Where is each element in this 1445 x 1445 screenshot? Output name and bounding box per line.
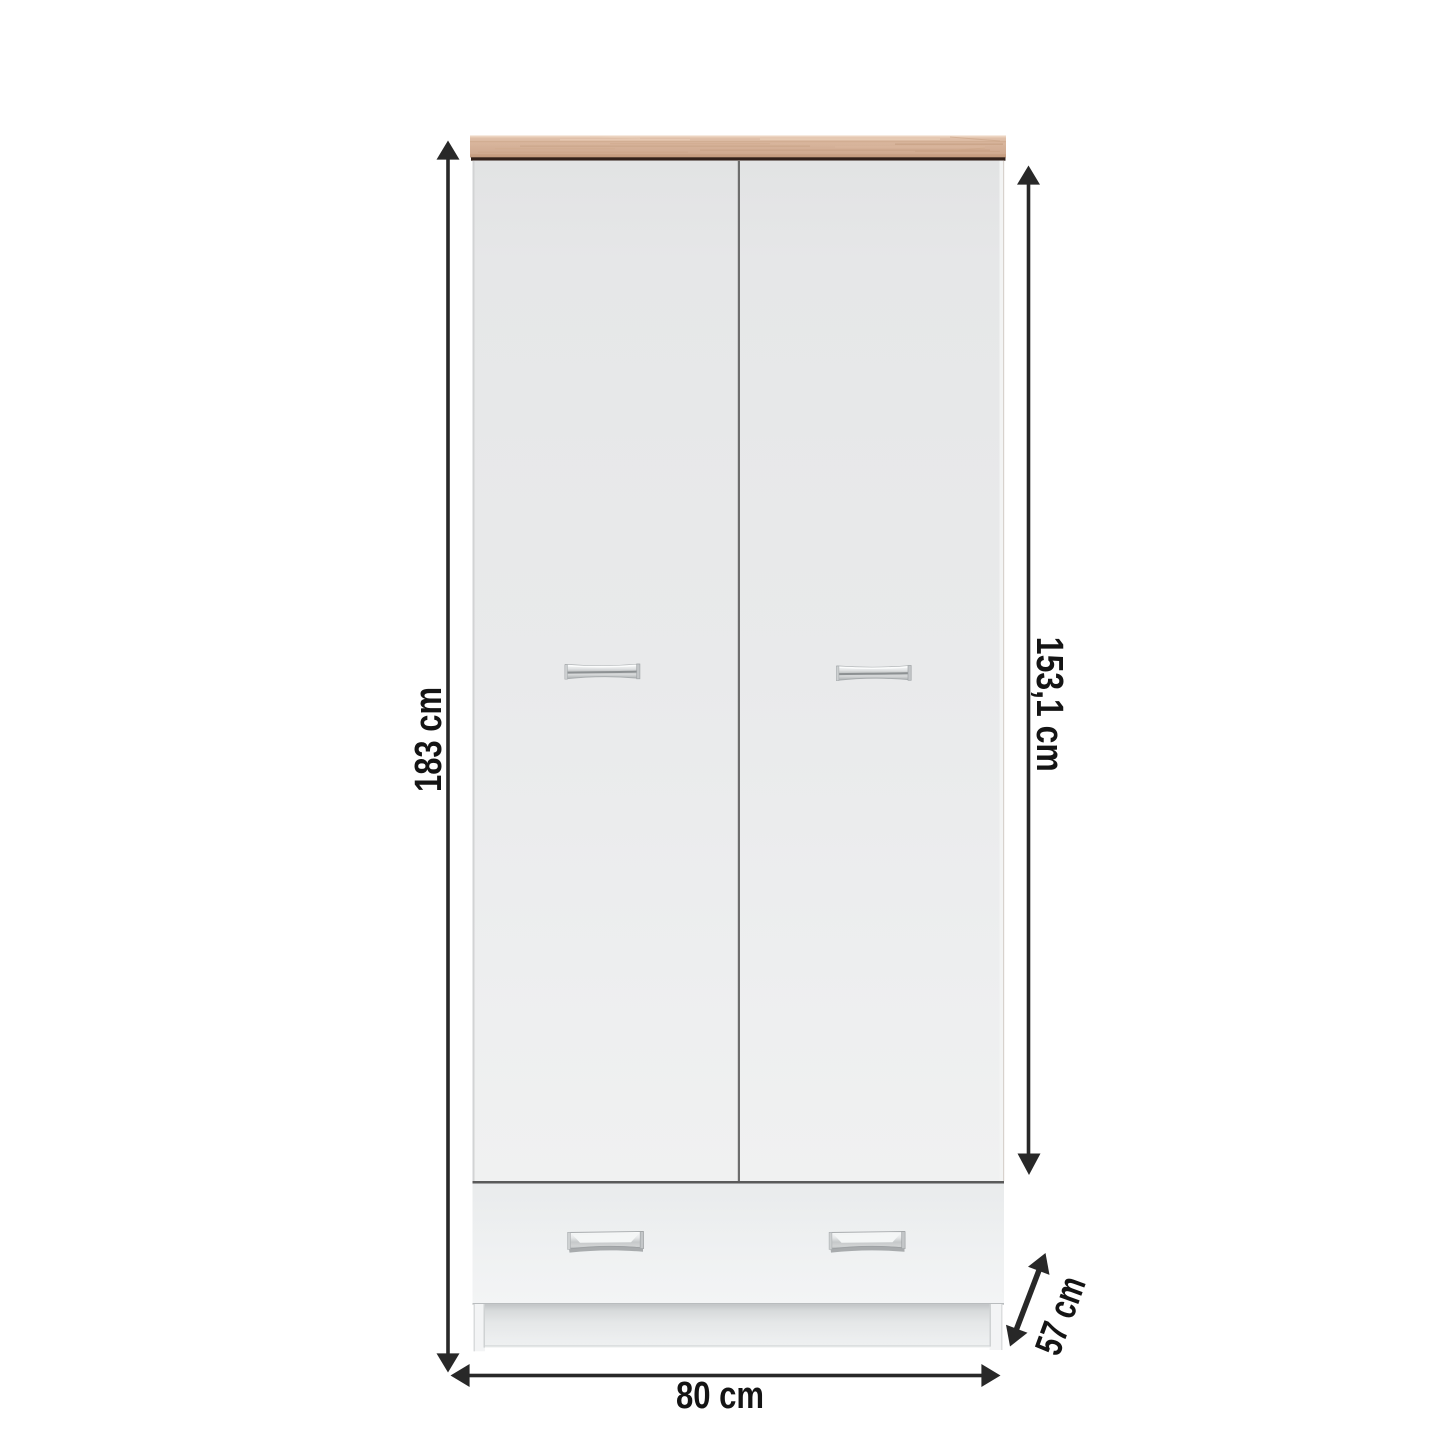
svg-text:183 cm: 183 cm <box>408 687 450 792</box>
svg-text:153,1 cm: 153,1 cm <box>1028 637 1070 772</box>
svg-text:80 cm: 80 cm <box>676 1375 764 1417</box>
